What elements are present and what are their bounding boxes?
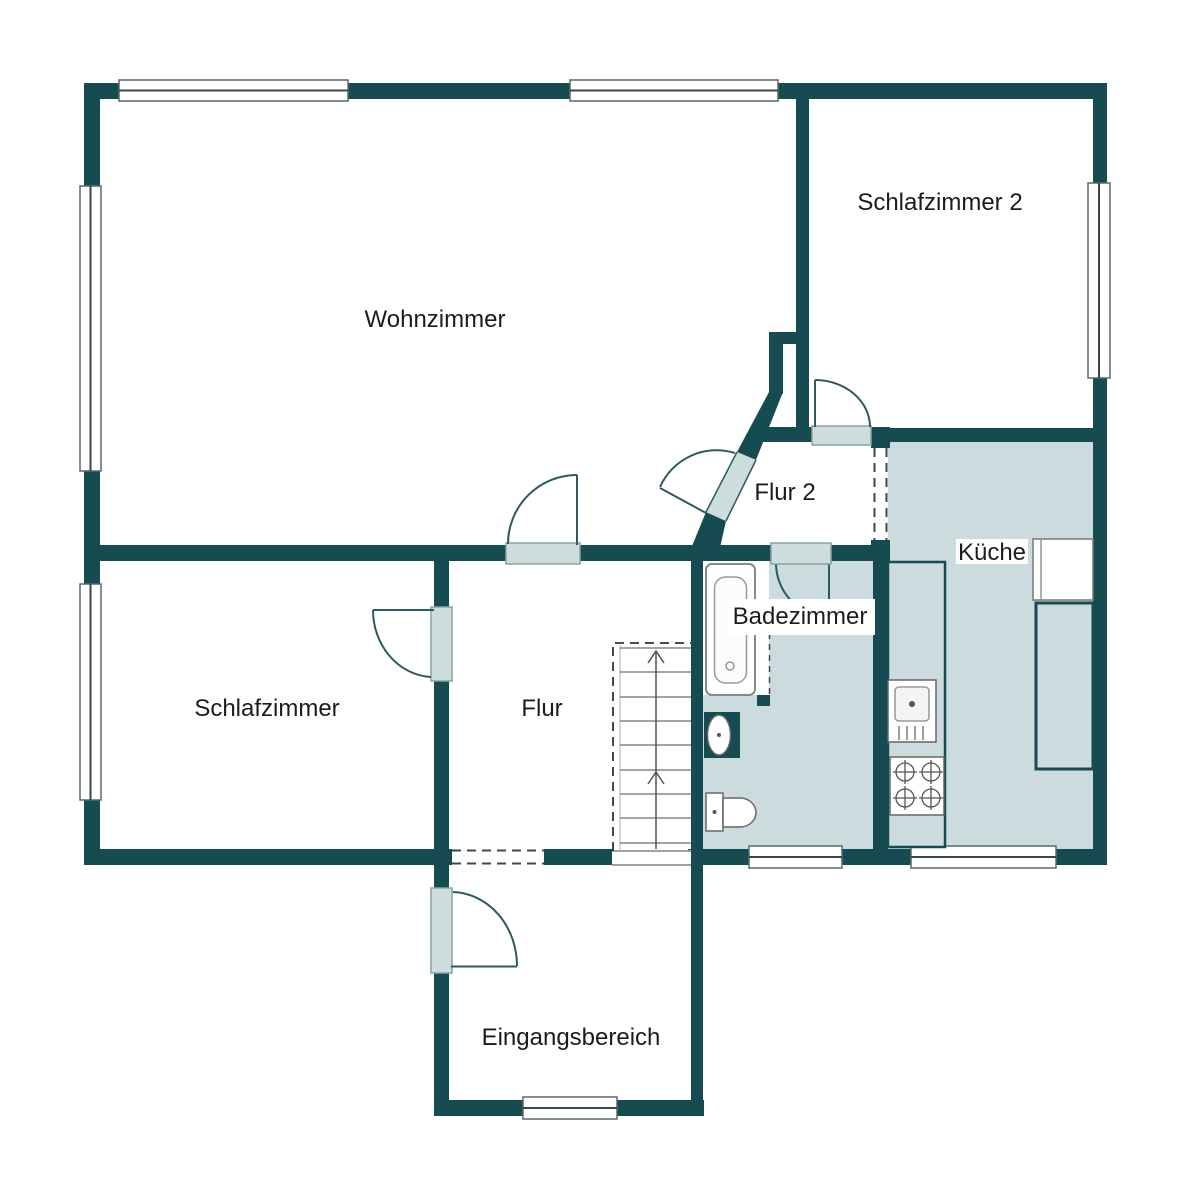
svg-text:Flur 2: Flur 2 — [754, 479, 815, 506]
svg-text:Schlafzimmer: Schlafzimmer — [194, 695, 339, 722]
svg-text:Flur: Flur — [521, 695, 562, 722]
svg-text:Wohnzimmer: Wohnzimmer — [365, 306, 506, 333]
svg-text:Eingangsbereich: Eingangsbereich — [482, 1024, 661, 1051]
svg-text:Badezimmer: Badezimmer — [733, 603, 868, 630]
svg-text:Schlafzimmer 2: Schlafzimmer 2 — [857, 189, 1022, 216]
svg-text:Küche: Küche — [958, 539, 1026, 566]
